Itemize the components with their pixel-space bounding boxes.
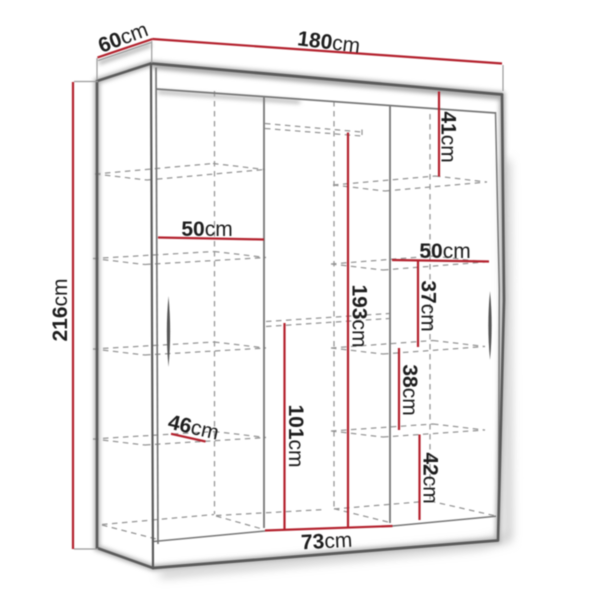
svg-text:37cm: 37cm [417,280,440,331]
svg-text:101cm: 101cm [284,404,307,467]
svg-text:42cm: 42cm [419,452,442,503]
svg-text:193cm: 193cm [348,284,371,347]
svg-text:38cm: 38cm [398,364,421,415]
svg-text:73cm: 73cm [300,529,352,555]
svg-text:50cm: 50cm [419,240,470,263]
svg-text:50cm: 50cm [181,218,232,241]
svg-text:41cm: 41cm [437,111,460,162]
svg-text:216cm: 216cm [49,278,72,341]
